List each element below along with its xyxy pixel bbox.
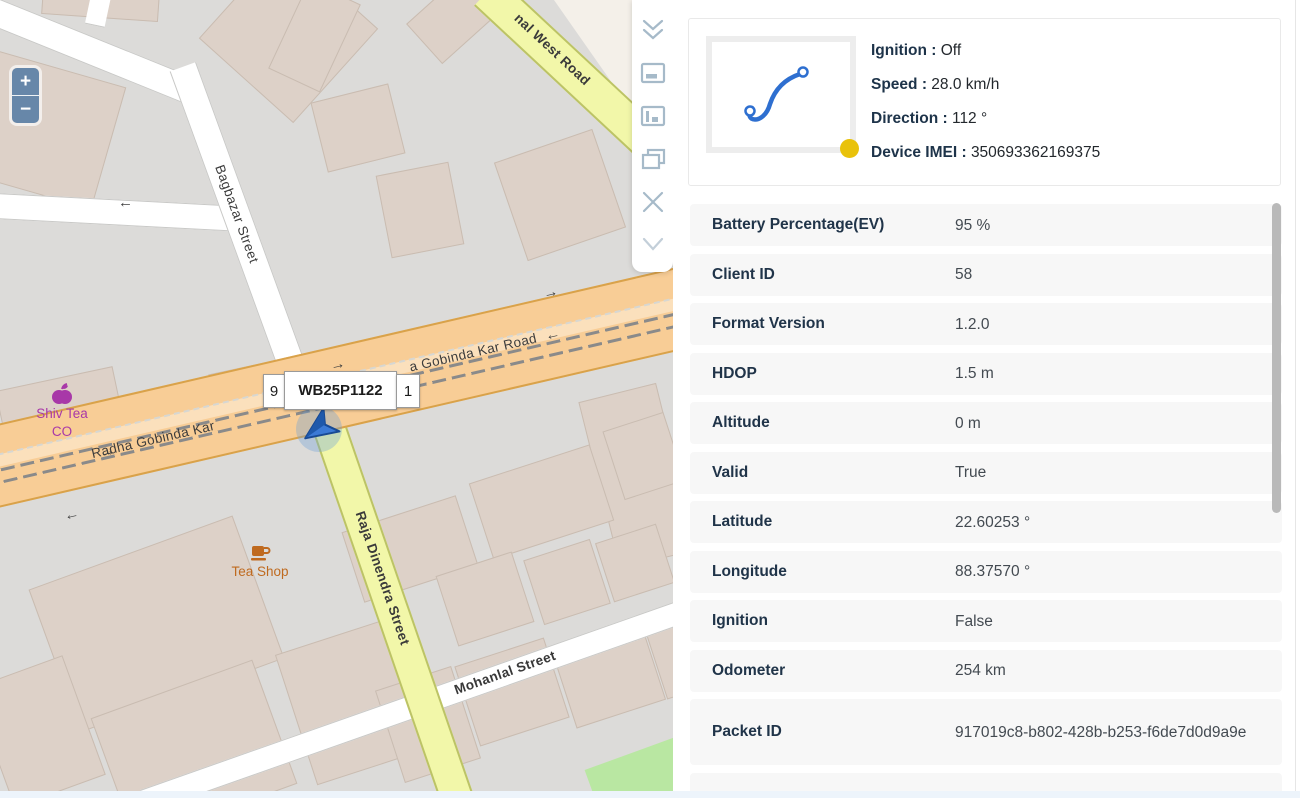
row-value: 22.60253 °: [955, 511, 1030, 534]
table-row: Odometer254 km: [690, 650, 1282, 692]
map-building: [376, 162, 465, 259]
oneway-arrow: ←: [62, 505, 80, 525]
vehicle-label-secondary[interactable]: 1: [396, 374, 420, 408]
table-row: Battery Percentage(EV)95 %: [690, 204, 1282, 246]
table-row: Latitude22.60253 °: [690, 501, 1282, 543]
bottom-scroll-strip[interactable]: [0, 791, 1300, 798]
table-row: Packet ID917019c8-b802-428b-b253-f6de7d0…: [690, 699, 1282, 765]
row-value: False: [955, 610, 993, 633]
tracking-app: Bagbazar Street Mohanlal Street nal West…: [0, 0, 1300, 798]
row-value: 58: [955, 263, 972, 286]
row-label: Ignition: [712, 612, 955, 630]
row-label: HDOP: [712, 365, 955, 383]
table-row: Client ID58: [690, 254, 1282, 296]
map-building: [310, 83, 405, 172]
panel-left-icon[interactable]: [639, 102, 667, 130]
device-detail-panel: Ignition : Off Speed : 28.0 km/h Directi…: [673, 0, 1300, 798]
row-value: 917019c8-b802-428b-b253-f6de7d0d9a9e: [955, 721, 1246, 744]
map-canvas[interactable]: Bagbazar Street Mohanlal Street nal West…: [0, 0, 673, 798]
copy-layers-icon[interactable]: [639, 145, 667, 173]
panel-bottom-icon[interactable]: [639, 59, 667, 87]
panel-scrollbar-thumb[interactable]: [1272, 203, 1281, 513]
summary-info: Ignition : Off Speed : 28.0 km/h Directi…: [871, 34, 1100, 170]
map-toolbar: [632, 0, 673, 272]
ignition-value: Off: [941, 42, 961, 59]
zoom-in-button[interactable]: +: [12, 68, 39, 96]
road-stub: [85, 0, 111, 28]
table-row: Longitude88.37570 °: [690, 551, 1282, 593]
speed-label: Speed :: [871, 76, 927, 93]
table-row: HDOP1.5 m: [690, 353, 1282, 395]
row-label: Format Version: [712, 315, 955, 333]
map-zoom-control: + −: [12, 68, 39, 123]
map-building: [469, 444, 615, 559]
row-value: 1.2.0: [955, 313, 989, 336]
speed-value: 28.0 km/h: [931, 76, 999, 93]
row-value: True: [955, 461, 986, 484]
telemetry-table: Battery Percentage(EV)95 % Client ID58 F…: [690, 204, 1282, 798]
ignition-label: Ignition :: [871, 42, 936, 59]
vehicle-label-plate[interactable]: WB25P1122: [284, 371, 397, 410]
imei-label: Device IMEI :: [871, 144, 967, 161]
row-label: Latitude: [712, 513, 955, 531]
map-building: [494, 129, 626, 261]
chevron-down-icon[interactable]: [639, 231, 667, 259]
row-value: 254 km: [955, 659, 1006, 682]
route-thumbnail: [706, 36, 856, 153]
row-value: 0 m: [955, 412, 981, 435]
status-dot: [840, 139, 859, 158]
page-edge-divider: [1295, 0, 1296, 798]
row-value: 88.37570 °: [955, 560, 1030, 583]
row-label: Battery Percentage(EV): [712, 216, 955, 234]
row-label: Packet ID: [712, 723, 955, 741]
convenience-store-icon: [50, 383, 74, 407]
poi-tea-shop-name: Tea Shop: [215, 564, 305, 579]
device-summary-card: Ignition : Off Speed : 28.0 km/h Directi…: [688, 18, 1281, 186]
table-row: ValidTrue: [690, 452, 1282, 494]
cafe-icon: [248, 541, 272, 565]
speed-line: Speed : 28.0 km/h: [871, 68, 1100, 102]
row-label: Odometer: [712, 662, 955, 680]
poi-shiv-tea-name2: CO: [17, 424, 107, 439]
row-value: 95 %: [955, 214, 990, 237]
close-icon[interactable]: [639, 188, 667, 216]
oneway-arrow: →: [541, 283, 559, 303]
imei-line: Device IMEI : 350693362169375: [871, 136, 1100, 170]
oneway-arrow: ←: [118, 194, 133, 211]
route-path-icon: [712, 42, 850, 147]
row-label: Client ID: [712, 266, 955, 284]
row-label: Altitude: [712, 414, 955, 432]
direction-label: Direction :: [871, 110, 948, 127]
table-row: IgnitionFalse: [690, 600, 1282, 642]
row-label: Longitude: [712, 563, 955, 581]
ignition-line: Ignition : Off: [871, 34, 1100, 68]
table-row: Format Version1.2.0: [690, 303, 1282, 345]
zoom-out-button[interactable]: −: [12, 96, 39, 123]
map-park: [585, 738, 673, 798]
row-label: Valid: [712, 464, 955, 482]
poi-shiv-tea-name: Shiv Tea: [17, 406, 107, 421]
direction-value: 112 °: [952, 110, 987, 127]
vehicle-label-secondary[interactable]: 9: [263, 374, 285, 408]
collapse-double-chevron-icon[interactable]: [639, 16, 667, 44]
table-row: Altitude0 m: [690, 402, 1282, 444]
row-value: 1.5 m: [955, 362, 994, 385]
direction-line: Direction : 112 °: [871, 102, 1100, 136]
imei-value: 350693362169375: [971, 144, 1100, 161]
